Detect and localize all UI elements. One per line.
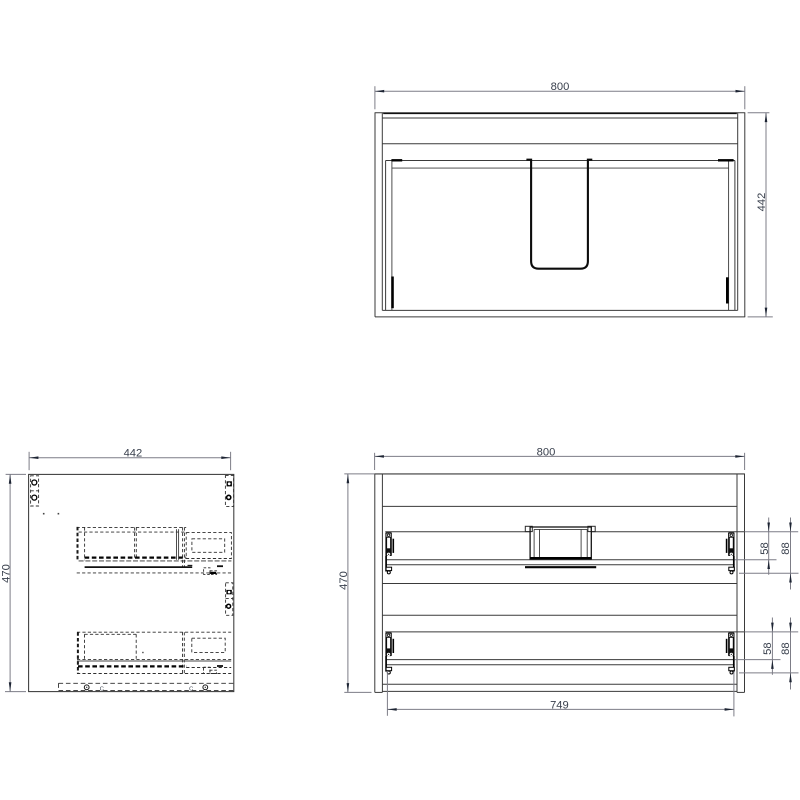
svg-text:442: 442 (124, 448, 143, 460)
svg-text:58: 58 (762, 642, 774, 654)
svg-text:88: 88 (780, 542, 792, 554)
svg-text:800: 800 (537, 446, 556, 458)
svg-text:C: C (100, 687, 104, 693)
svg-text:88: 88 (780, 642, 792, 654)
svg-text:C: C (189, 687, 193, 693)
svg-text:470: 470 (0, 564, 12, 583)
svg-text:470: 470 (338, 571, 350, 590)
svg-text:800: 800 (551, 81, 570, 93)
svg-text:442: 442 (756, 193, 768, 212)
svg-text:58: 58 (759, 542, 771, 554)
svg-text:749: 749 (550, 700, 569, 712)
